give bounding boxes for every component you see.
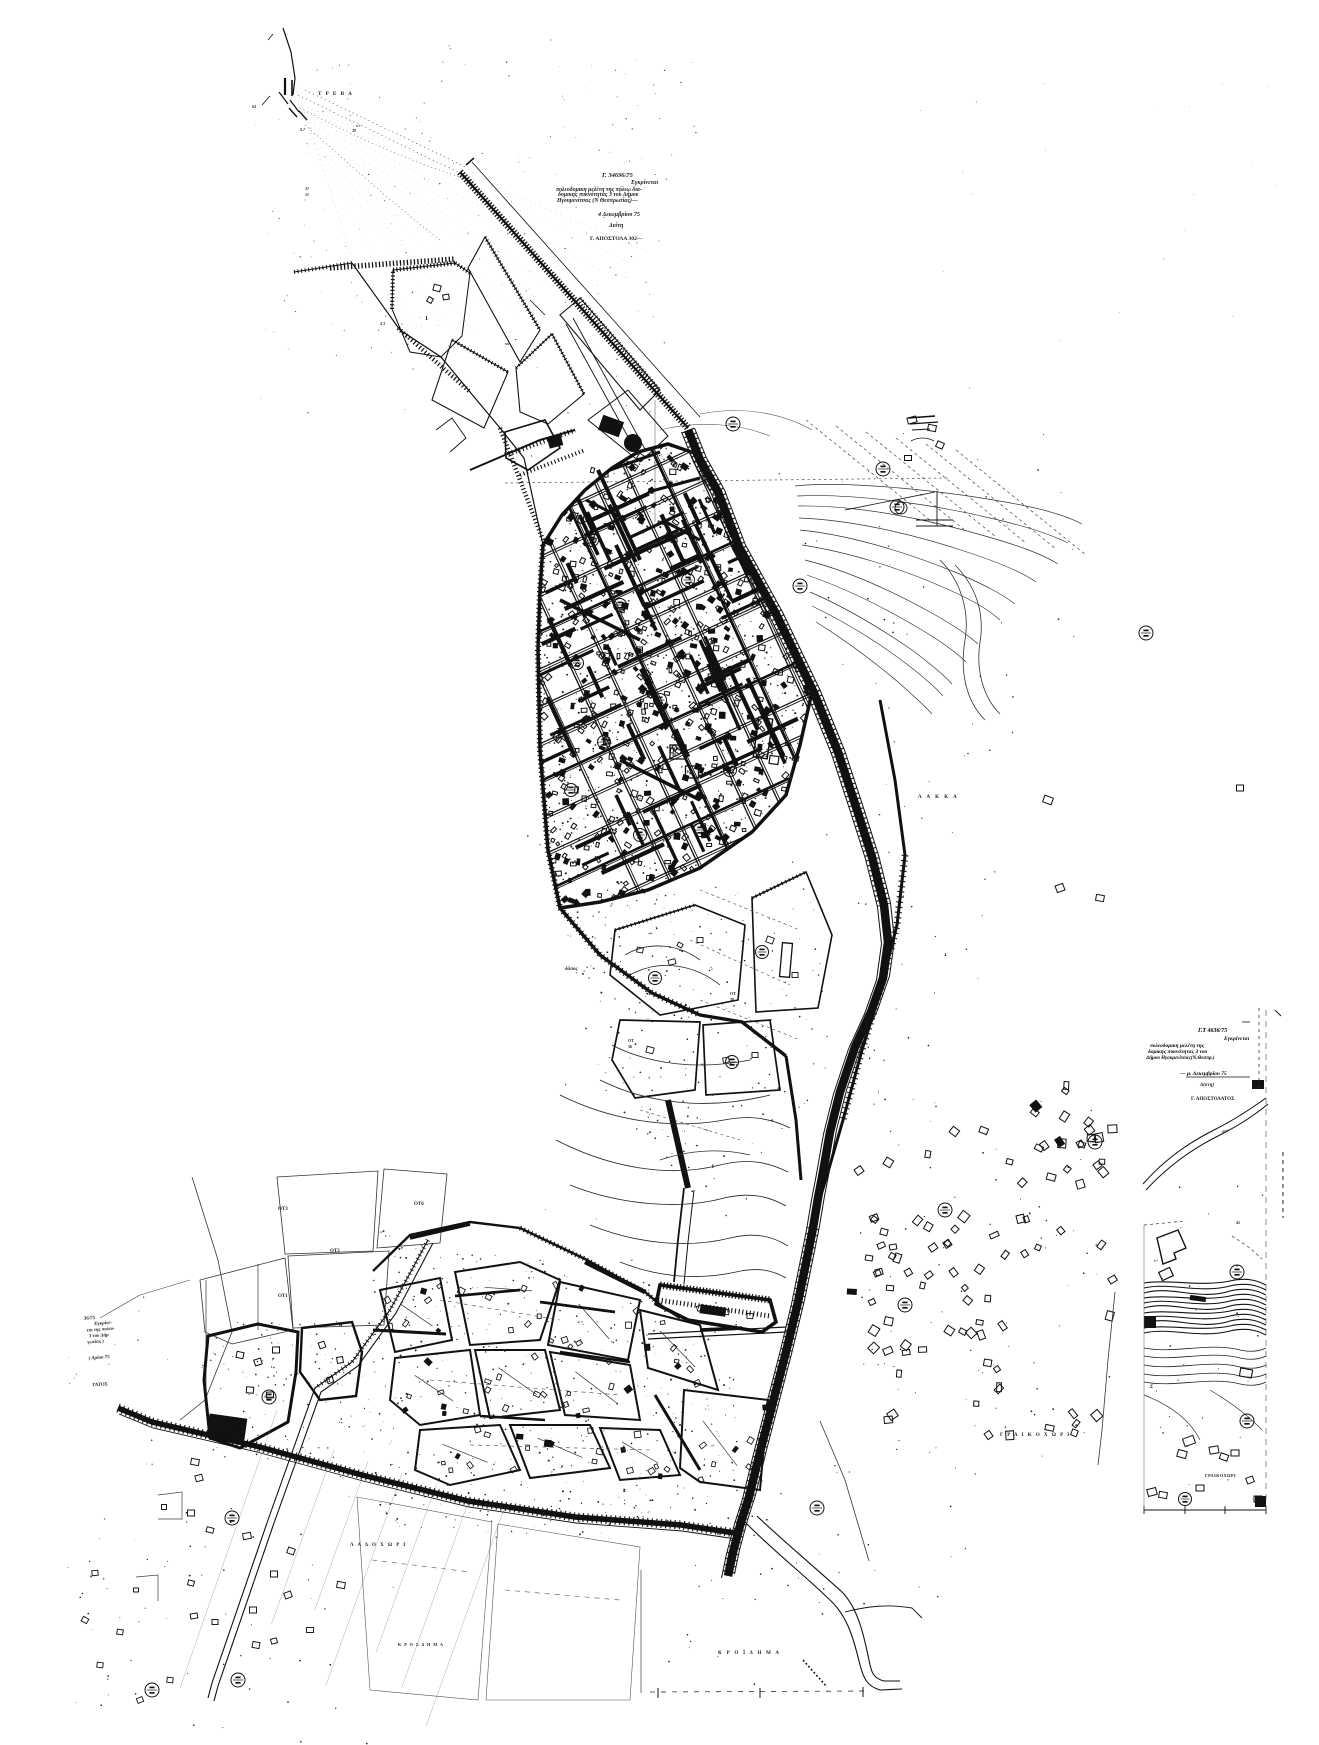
svg-text:ΟΤ: ΟΤ xyxy=(672,746,678,751)
svg-text:— μ. Δεκεμβρίου 75: — μ. Δεκεμβρίου 75 xyxy=(1179,1070,1227,1077)
svg-text:Γ. ΑΠΟΣΤΟΛΑΤΟΣ: Γ. ΑΠΟΣΤΟΛΑΤΟΣ xyxy=(1191,1097,1235,1102)
svg-text:4 Δεκεμβρίου 75: 4 Δεκεμβρίου 75 xyxy=(597,211,640,218)
svg-text:xx: xx xyxy=(505,341,509,346)
svg-text:ΟΤ6: ΟΤ6 xyxy=(414,1202,424,1207)
svg-text:0.7: 0.7 xyxy=(356,124,361,128)
svg-text:Εγκρίνεται: Εγκρίνεται xyxy=(630,179,658,186)
svg-text:Τ Ρ Ε Β Α: Τ Ρ Ε Β Α xyxy=(318,91,353,97)
svg-text:39: 39 xyxy=(351,128,356,133)
svg-text:45: 45 xyxy=(1235,1220,1240,1225)
svg-text:40: 40 xyxy=(672,752,676,757)
svg-text:ΟΤ: ΟΤ xyxy=(730,991,736,996)
svg-text:δομικης πυκνότητας 3 του Δήμου: δομικης πυκνότητας 3 του Δήμου xyxy=(558,191,639,198)
svg-text:ΟΤ: ΟΤ xyxy=(628,1038,634,1043)
svg-text:51: 51 xyxy=(305,192,309,197)
svg-text:ΓΡΑΙΚΟΧΩΡΙ: ΓΡΑΙΚΟΧΩΡΙ xyxy=(1205,1473,1236,1478)
svg-text:Λ Α Δ Ο Χ Ω Ρ Ι: Λ Α Δ Ο Χ Ω Ρ Ι xyxy=(350,1543,407,1548)
svg-text:36/75: 36/75 xyxy=(83,1316,96,1322)
svg-text:Γ. 34696/75: Γ. 34696/75 xyxy=(601,172,634,179)
svg-text:Διότη: Διότη xyxy=(608,222,624,229)
svg-text:Εγκρίνεται: Εγκρίνεται xyxy=(1223,1035,1250,1042)
svg-text:δομικης πυκνότητας 3 του: δομικης πυκνότητας 3 του xyxy=(1148,1048,1207,1055)
svg-text:38: 38 xyxy=(730,997,734,1002)
svg-text:Δήμου Ηγουμενίτσας(Ν.Θεσπρ.): Δήμου Ηγουμενίτσας(Ν.Θεσπρ.) xyxy=(1145,1054,1215,1061)
svg-text:Κ Ρ Ο Ϊ Δ Η Μ Α: Κ Ρ Ο Ϊ Δ Η Μ Α xyxy=(718,1650,781,1656)
svg-text:Γ.Τ 4636/75: Γ.Τ 4636/75 xyxy=(1197,1028,1227,1034)
svg-text:Κ Ρ Ο Σ Δ Η Μ Α: Κ Ρ Ο Σ Δ Η Μ Α xyxy=(398,1642,444,1647)
svg-text:ΟΤ2: ΟΤ2 xyxy=(330,1249,340,1254)
svg-text:Γ Ρ Α Ι Κ Ο Χ Ω Ρ Ι: Γ Ρ Α Ι Κ Ο Χ Ω Ρ Ι xyxy=(1000,1433,1071,1438)
svg-text:Δ(στη): Δ(στη) xyxy=(1199,1083,1214,1088)
svg-text:ΟΤ1: ΟΤ1 xyxy=(278,1294,288,1299)
svg-text:ΟΤ3: ΟΤ3 xyxy=(278,1207,288,1212)
svg-text:Λ Α Κ Κ Α: Λ Α Κ Κ Α xyxy=(918,795,959,800)
svg-text:63: 63 xyxy=(252,104,256,109)
svg-text:Γ. ΑΠΟΣΤΟΛΑ 302—: Γ. ΑΠΟΣΤΟΛΑ 302— xyxy=(590,236,643,242)
svg-text:Ηγουμενίτσας (Ν Θεσπρωτίας)—: Ηγουμενίτσας (Ν Θεσπρωτίας)— xyxy=(556,197,638,204)
svg-text:πολεοδομικη μελέτη της: πολεοδομικη μελέτη της xyxy=(1150,1042,1205,1049)
svg-text:1: 1 xyxy=(425,316,428,322)
svg-text:ΚΧ: ΚΧ xyxy=(687,769,693,774)
svg-text:4 3: 4 3 xyxy=(379,321,385,326)
svg-text:36: 36 xyxy=(628,1044,632,1049)
svg-text:δάσος: δάσος xyxy=(565,966,579,972)
